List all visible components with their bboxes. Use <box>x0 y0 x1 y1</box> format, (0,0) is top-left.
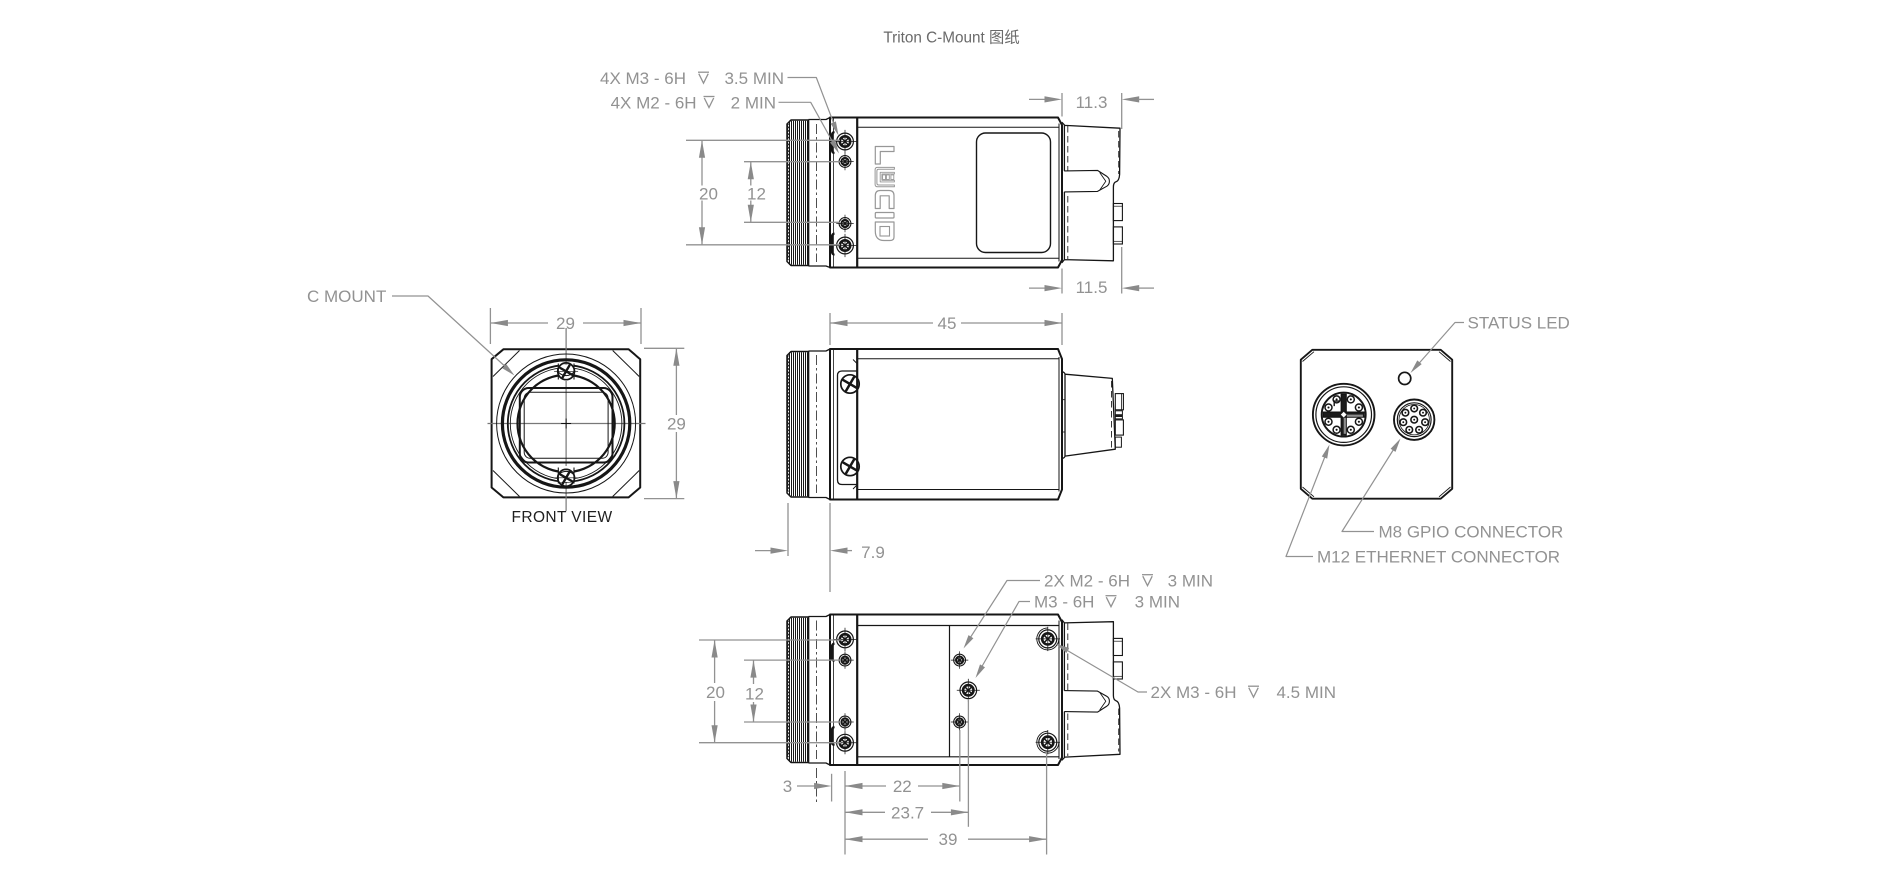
svg-text:29: 29 <box>556 314 575 333</box>
svg-text:39: 39 <box>939 830 958 849</box>
svg-text:7.9: 7.9 <box>861 543 885 562</box>
svg-text:2X M2 - 6H: 2X M2 - 6H <box>1044 572 1130 591</box>
svg-text:29: 29 <box>667 415 686 434</box>
svg-text:45: 45 <box>938 314 957 333</box>
svg-text:3 MIN: 3 MIN <box>1168 572 1213 591</box>
svg-text:4X M2 - 6H: 4X M2 - 6H <box>611 93 697 112</box>
svg-text:11.3: 11.3 <box>1076 93 1108 112</box>
svg-text:C MOUNT: C MOUNT <box>307 287 386 306</box>
svg-text:11.5: 11.5 <box>1076 278 1108 297</box>
svg-text:M3 - 6H: M3 - 6H <box>1034 593 1094 612</box>
svg-text:2X M3 - 6H: 2X M3 - 6H <box>1151 683 1237 702</box>
svg-text:M12 ETHERNET CONNECTOR: M12 ETHERNET CONNECTOR <box>1317 548 1560 567</box>
svg-text:STATUS LED: STATUS LED <box>1468 314 1570 333</box>
svg-text:4.5 MIN: 4.5 MIN <box>1276 683 1336 702</box>
svg-text:20: 20 <box>706 683 725 702</box>
svg-text:4X M3 - 6H: 4X M3 - 6H <box>600 69 686 88</box>
svg-text:22: 22 <box>893 777 912 796</box>
svg-text:3 MIN: 3 MIN <box>1135 593 1180 612</box>
svg-text:2 MIN: 2 MIN <box>731 93 776 112</box>
svg-text:12: 12 <box>745 685 764 704</box>
svg-text:3: 3 <box>783 777 792 796</box>
svg-text:FRONT VIEW: FRONT VIEW <box>511 509 612 526</box>
svg-text:3.5 MIN: 3.5 MIN <box>724 69 784 88</box>
svg-text:20: 20 <box>699 184 718 203</box>
svg-text:M8 GPIO CONNECTOR: M8 GPIO CONNECTOR <box>1379 523 1564 542</box>
svg-text:Triton C-Mount 图纸: Triton C-Mount 图纸 <box>883 30 1019 47</box>
svg-text:12: 12 <box>747 184 766 203</box>
svg-text:23.7: 23.7 <box>891 803 924 822</box>
